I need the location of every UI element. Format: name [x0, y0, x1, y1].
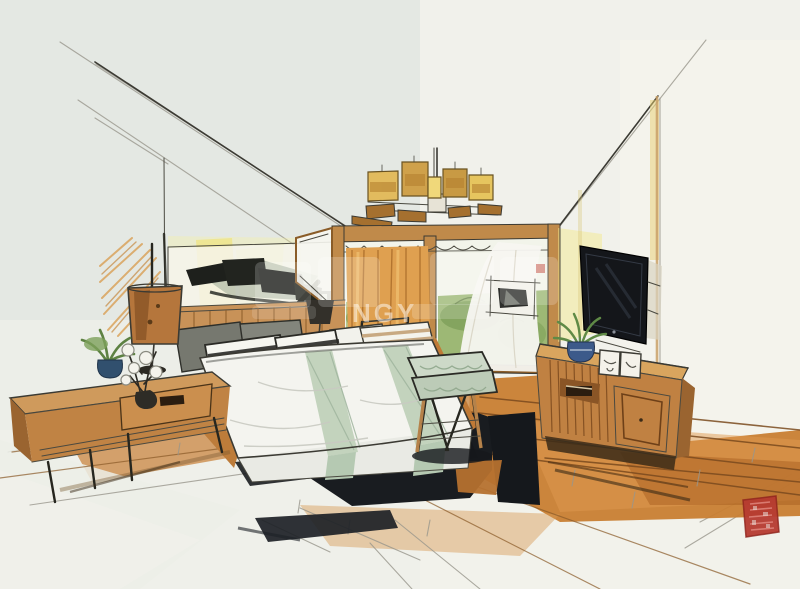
watermark-letters: NGY [352, 298, 417, 328]
photo-frames [599, 350, 641, 378]
watermark-red-mark [536, 264, 545, 273]
artist-seal [743, 496, 779, 537]
bedroom-sketch-image: NGY [0, 0, 800, 589]
